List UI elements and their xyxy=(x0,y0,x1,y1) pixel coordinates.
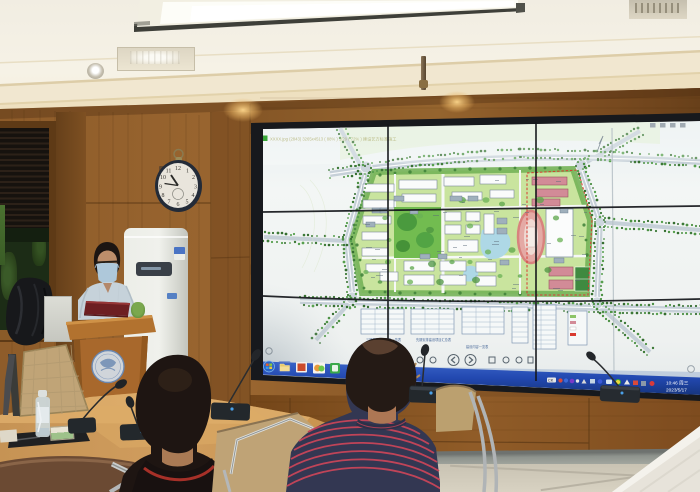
svg-text:1: 1 xyxy=(186,169,189,175)
svg-text:9: 9 xyxy=(159,185,162,191)
svg-text:8: 8 xyxy=(162,193,165,199)
svg-text:3: 3 xyxy=(194,185,197,191)
svg-text:6: 6 xyxy=(177,202,180,208)
svg-text:11: 11 xyxy=(166,169,172,175)
svg-text:5: 5 xyxy=(186,200,189,206)
svg-text:7: 7 xyxy=(168,200,171,206)
svg-text:建设内容一览表: 建设内容一览表 xyxy=(466,344,489,349)
svg-text:XXXX.jpg (2843) 3265x4513 ( 88: XXXX.jpg (2843) 3265x4513 ( 88% ) 1/29 (… xyxy=(270,136,396,143)
svg-text:10: 10 xyxy=(160,175,166,181)
svg-text:2: 2 xyxy=(192,175,195,181)
svg-text:12: 12 xyxy=(175,166,181,172)
svg-text:4: 4 xyxy=(192,193,195,199)
